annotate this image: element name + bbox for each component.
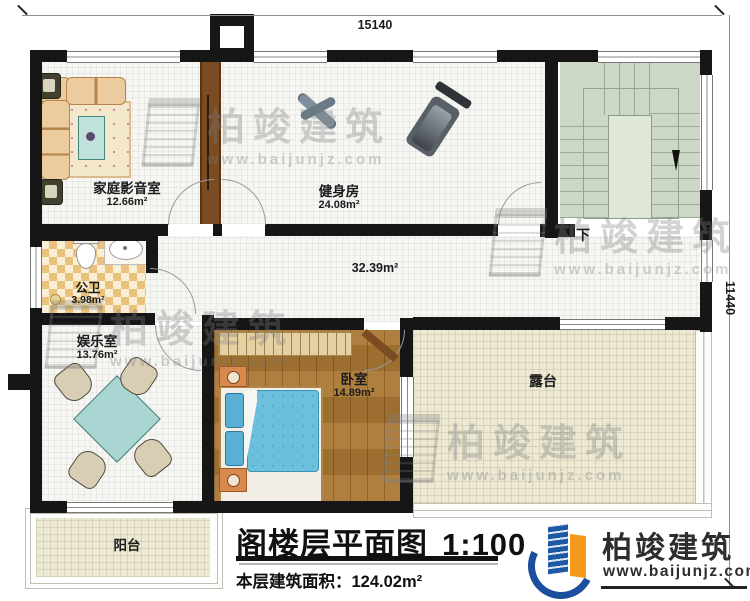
wall-segment [700, 190, 712, 240]
room-label-bed: 卧室 14.89m² [334, 372, 375, 399]
room-name: 阳台 [114, 538, 141, 553]
terrace-slider [560, 319, 665, 330]
logo-tower-blue [548, 524, 568, 575]
wall-stub [8, 374, 30, 390]
bed-sheet-fold [244, 390, 257, 470]
gym-floor [217, 62, 545, 224]
room-area: 3.98m² [71, 295, 104, 307]
room-name: 公卫 [71, 281, 104, 295]
brand-logo-icon [528, 521, 600, 593]
wall-segment [173, 501, 202, 513]
mattress [247, 390, 319, 472]
floor-area-label: 本层建筑面积： [236, 573, 352, 591]
wall-segment [665, 317, 712, 330]
room-name: 健身房 [319, 184, 360, 199]
stairs-direction-label: 下 [576, 228, 590, 244]
wall-segment [214, 501, 413, 513]
room-name: 露台 [529, 374, 557, 390]
window [701, 75, 713, 190]
room-area: 24.08m² [319, 199, 360, 211]
dim-tick [17, 5, 28, 16]
window [413, 51, 497, 63]
balcony-slider [67, 502, 173, 513]
floor-area-value: 124.02m² [352, 573, 423, 591]
room-area: 32.39m² [352, 261, 399, 275]
stairs-direction: 下 [576, 228, 590, 244]
terrace-floor [413, 330, 695, 503]
wall-segment [30, 50, 42, 247]
stairwell-wall [545, 50, 558, 238]
room-label-media: 家庭影音室 12.66m² [93, 181, 161, 208]
wall-segment [413, 317, 560, 330]
wall-segment [180, 50, 210, 62]
window [254, 51, 327, 63]
speaker [40, 179, 63, 205]
room-name: 卧室 [334, 372, 375, 387]
brand-name: 柏竣建筑 [602, 523, 734, 567]
wall-segment [202, 315, 214, 513]
stairwell [560, 62, 700, 218]
nightstand [219, 366, 247, 387]
floor-area-line: 本层建筑面积：124.02m² [236, 568, 422, 592]
window [67, 51, 180, 63]
stair-down-arrow [672, 150, 680, 171]
window [30, 247, 42, 308]
wall-segment [30, 224, 168, 236]
title-underline-shadow [239, 563, 498, 565]
nightstand [219, 468, 247, 492]
floor-drain [50, 294, 61, 305]
room-name: 娱乐室 [77, 334, 118, 349]
dim-tick [714, 5, 725, 16]
sofa-top [66, 77, 126, 105]
right-dimension-value: 11440 [723, 270, 737, 326]
top-dimension-line [22, 15, 722, 16]
sofa-left [41, 100, 70, 180]
sink-drain [123, 246, 127, 250]
room-label-terrace: 露台 [529, 374, 557, 390]
wall-segment [30, 313, 155, 325]
terrace-parapet-right [695, 330, 712, 505]
room-name: 家庭影音室 [93, 181, 161, 196]
room-area: 12.66m² [93, 196, 161, 208]
room-area: 14.89m² [334, 387, 375, 399]
logo-tower-orange [570, 534, 586, 578]
top-dimension-value: 15140 [332, 18, 418, 32]
wall-segment [327, 50, 413, 62]
room-area: 13.76m² [77, 349, 118, 361]
floorplan-canvas: 15140 11440 [0, 0, 750, 601]
window [701, 240, 713, 282]
table-decor [86, 132, 95, 141]
wall-segment [700, 50, 712, 75]
wall-segment [214, 318, 364, 330]
wall-segment [265, 224, 498, 236]
pillow [225, 431, 244, 466]
wardrobe [218, 332, 352, 356]
wall-segment [30, 501, 67, 513]
terrace-parapet-bottom [413, 503, 712, 518]
pillow [225, 393, 244, 428]
title-underline [236, 556, 498, 561]
wall-pier [213, 224, 222, 236]
brand-underline [601, 586, 747, 589]
wall-segment [30, 308, 42, 513]
room-label-bath: 公卫 3.98m² [71, 281, 104, 307]
chimney-flue [220, 26, 244, 48]
brand-website: www.baijunjz.com [603, 563, 750, 581]
room-label-gym: 健身房 24.08m² [319, 184, 360, 211]
wall-segment [400, 318, 413, 377]
stair-flight-panel [608, 115, 652, 219]
window [401, 377, 414, 457]
dumbbells [293, 88, 343, 136]
room-label-play: 娱乐室 13.76m² [77, 334, 118, 361]
wall-segment [146, 230, 158, 273]
hall-area-label: 32.39m² [352, 261, 399, 275]
room-label-balcony: 阳台 [114, 538, 141, 553]
window [598, 51, 700, 63]
cabinet-handle [207, 95, 209, 190]
